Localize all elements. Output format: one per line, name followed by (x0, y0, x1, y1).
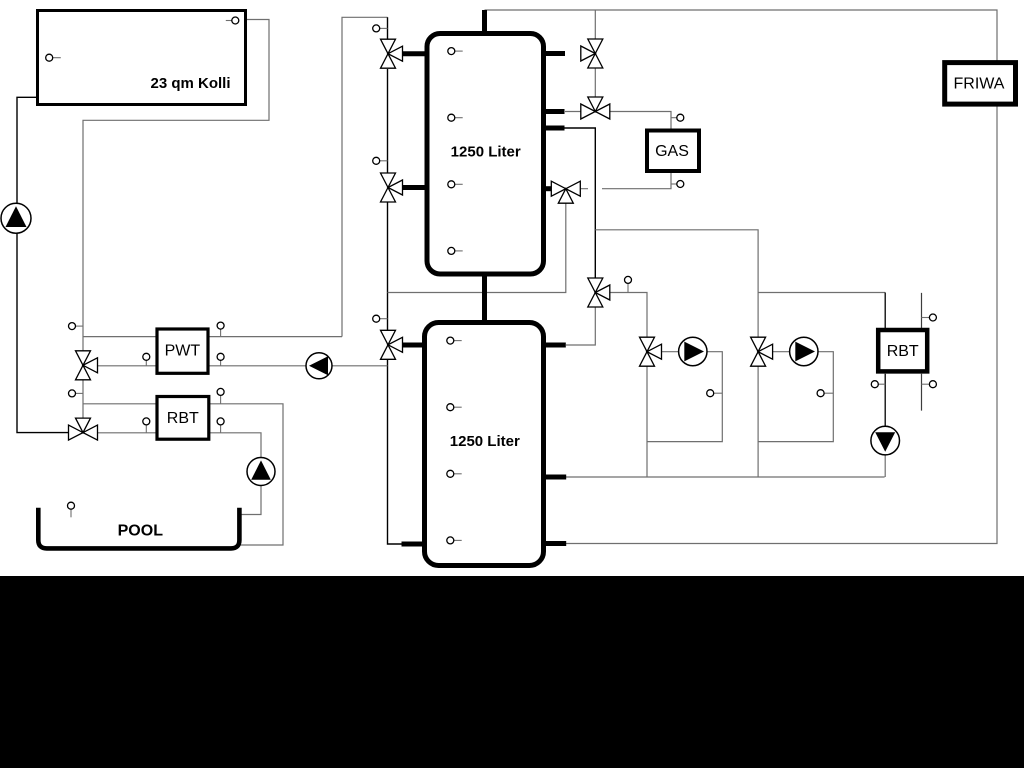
svg-text:PWT: PWT (165, 343, 201, 360)
svg-text:23 qm Kolli: 23 qm Kolli (150, 75, 230, 92)
svg-text:RBT: RBT (887, 343, 919, 360)
svg-text:1250 Liter: 1250 Liter (451, 143, 521, 160)
svg-text:POOL: POOL (118, 522, 164, 539)
svg-text:1250 Liter: 1250 Liter (450, 433, 520, 450)
svg-text:RBT: RBT (167, 410, 199, 427)
svg-text:FRIWA: FRIWA (954, 75, 1005, 92)
svg-text:GAS: GAS (655, 143, 689, 160)
